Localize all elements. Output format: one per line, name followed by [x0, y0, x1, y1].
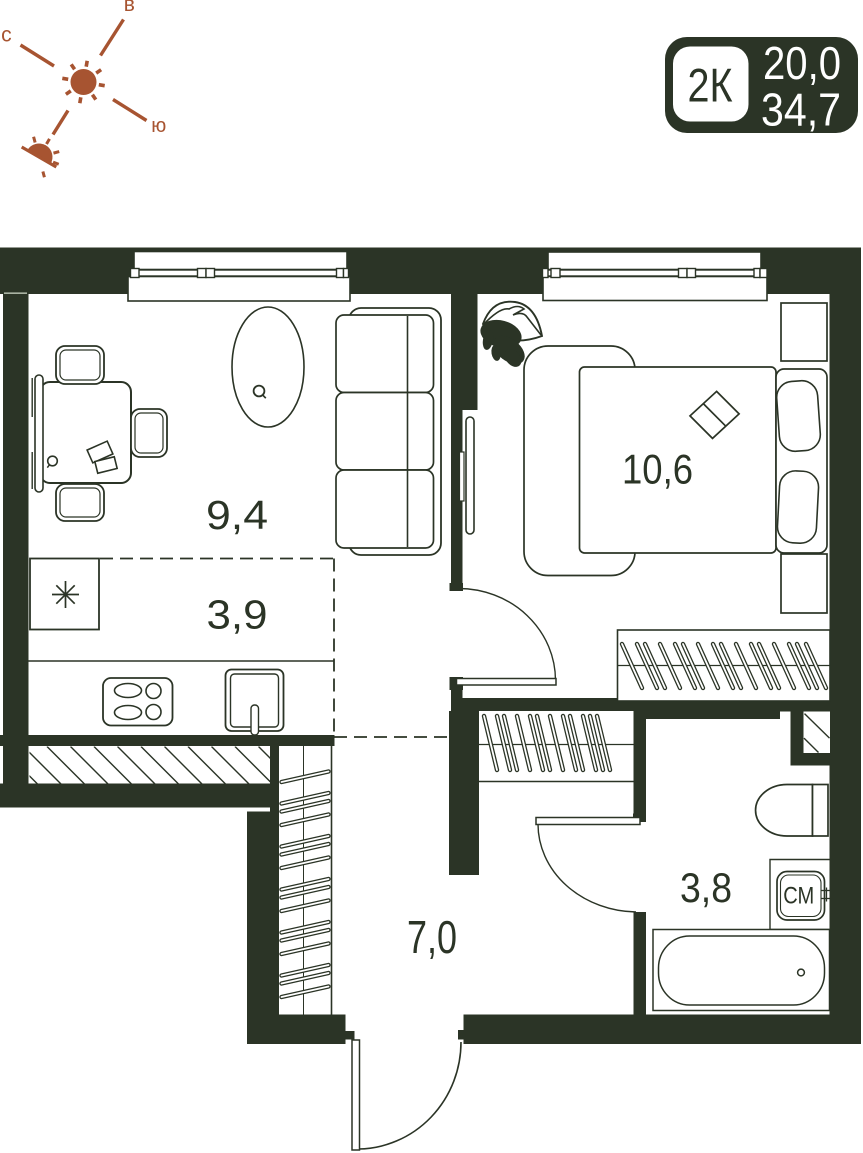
svg-text:10,6: 10,6	[622, 446, 693, 493]
svg-text:ю: ю	[151, 115, 166, 137]
svg-text:3,9: 3,9	[207, 592, 268, 638]
svg-text:7,0: 7,0	[407, 911, 457, 963]
svg-text:2К: 2К	[688, 59, 734, 112]
svg-text:3,8: 3,8	[680, 864, 732, 911]
svg-text:9,4: 9,4	[206, 492, 268, 538]
svg-text:20,0: 20,0	[763, 37, 841, 89]
svg-text:с: с	[1, 24, 12, 47]
svg-text:в: в	[124, 0, 135, 16]
svg-text:34,7: 34,7	[761, 83, 841, 135]
svg-text:СМ: СМ	[783, 883, 814, 910]
